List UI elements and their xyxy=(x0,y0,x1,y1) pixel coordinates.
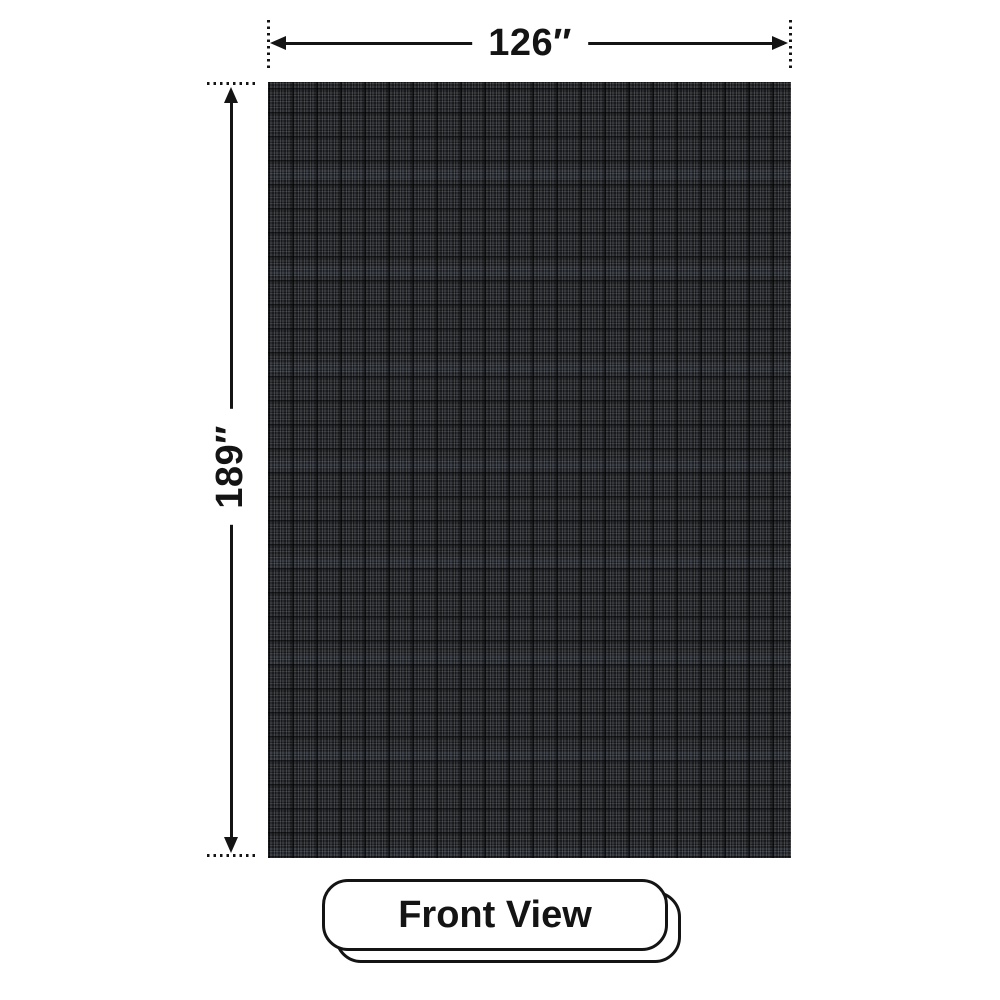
height-extension-line-bottom xyxy=(207,854,255,857)
width-extension-line-right xyxy=(789,20,792,70)
view-badge: Front View xyxy=(322,879,668,951)
dimension-diagram: 126″ 189″ Front View xyxy=(0,0,1000,1000)
product-panel-front-face xyxy=(268,82,791,858)
arrowhead-right-icon xyxy=(772,36,788,50)
arrowhead-down-icon xyxy=(224,837,238,853)
height-dimension-label: 189″ xyxy=(209,409,251,525)
view-badge-label: Front View xyxy=(398,896,592,934)
arrowhead-left-icon xyxy=(270,36,286,50)
arrowhead-up-icon xyxy=(224,87,238,103)
width-dimension-label: 126″ xyxy=(472,22,588,64)
height-extension-line-top xyxy=(207,82,255,85)
